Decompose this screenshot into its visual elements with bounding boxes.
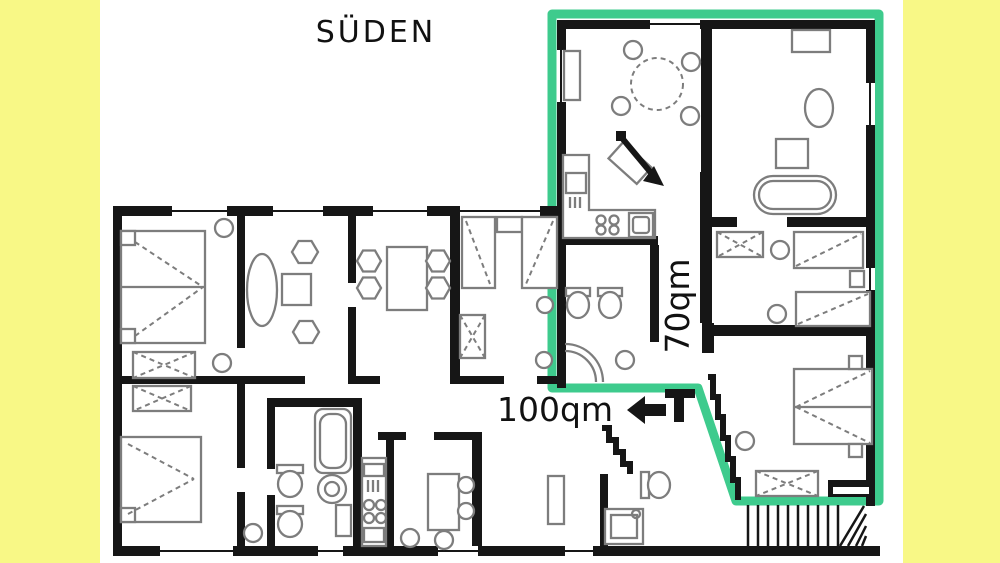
chair: [293, 321, 319, 343]
floor-plan-page: SÜDEN 100qm 70qm: [0, 0, 1000, 563]
bedroom-mid-70qm: [717, 232, 870, 326]
left-yellow-band: [0, 0, 100, 563]
door-handle: [213, 354, 231, 372]
bathroom-100qm: [277, 409, 351, 537]
dining-70qm: [564, 41, 700, 125]
area-label-70qm: 70qm: [658, 258, 697, 353]
bedroom-bottom-70qm: [736, 356, 872, 496]
kitchen-100qm: [362, 458, 386, 546]
dresser: [717, 232, 763, 257]
entry-arrow: [609, 131, 664, 186]
sink: [336, 505, 351, 536]
stool: [215, 219, 233, 237]
chair: [458, 503, 474, 519]
chair: [426, 251, 450, 272]
right-yellow-band: [903, 0, 1000, 563]
corner-shower: [565, 344, 603, 382]
shower: [318, 475, 346, 503]
wardrobe: [462, 217, 495, 288]
stool: [771, 241, 789, 259]
shelf: [564, 51, 580, 100]
bathroom-70qm: [565, 288, 634, 382]
chair: [681, 107, 699, 125]
dining-table: [387, 247, 427, 310]
chair: [426, 278, 450, 299]
living-room-70qm: [754, 30, 836, 214]
sink: [616, 351, 634, 369]
nightstand: [850, 271, 864, 287]
staircase: [748, 505, 866, 546]
bedroom-top-left: [121, 219, 233, 378]
area-label-100qm: 100qm: [497, 390, 613, 429]
area-arrow-left-icon: [627, 396, 666, 424]
chair: [805, 89, 833, 127]
compass-label: SÜDEN: [316, 14, 437, 50]
door-handle: [736, 432, 754, 450]
dining-room: [357, 247, 450, 310]
sofa: [247, 254, 277, 326]
chair: [682, 53, 700, 71]
table: [776, 139, 808, 168]
table: [282, 274, 311, 305]
door-handle: [537, 297, 553, 313]
cupboard: [548, 476, 564, 524]
wc-room: [605, 472, 670, 544]
chair: [458, 477, 474, 493]
door-handle: [536, 352, 552, 368]
chair: [612, 97, 630, 115]
shelf: [792, 30, 830, 52]
chair: [401, 529, 419, 547]
wardrobe: [522, 217, 557, 288]
shaft: [460, 315, 485, 358]
chair: [624, 41, 642, 59]
chair: [435, 531, 453, 549]
closet-room: [460, 217, 557, 368]
round-table: [631, 58, 683, 110]
chair: [357, 251, 381, 272]
living-room: [247, 241, 319, 343]
stool: [768, 305, 786, 323]
door-handle: [244, 524, 262, 542]
table: [428, 474, 459, 530]
floor-plan-drawing: SÜDEN 100qm 70qm: [0, 0, 1000, 563]
breakfast-room: [401, 474, 564, 549]
chair: [357, 278, 381, 299]
chair: [292, 241, 318, 263]
